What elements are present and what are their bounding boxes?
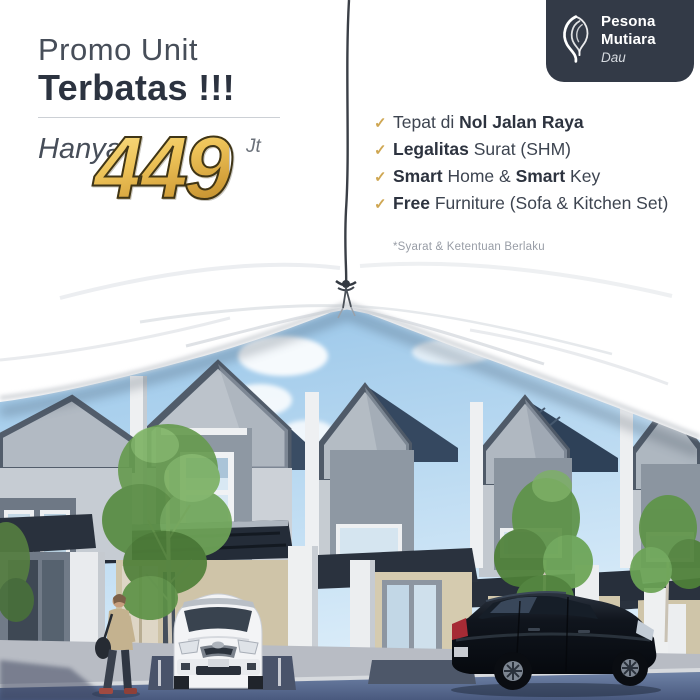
promo-title-line1: Promo Unit <box>38 34 235 67</box>
brand-line2: Mutiara <box>601 31 656 48</box>
check-icon: ✓ <box>374 168 393 186</box>
feature-item: ✓ Legalitas Surat (SHM) <box>374 139 668 166</box>
feature-text: Tepat di Nol Jalan Raya <box>393 112 584 133</box>
promo-flyer-canvas: Promo Unit Terbatas !!! Hanya 449 Jt Pes… <box>0 0 700 700</box>
check-icon: ✓ <box>374 141 393 159</box>
white-suv <box>174 594 263 689</box>
feature-text: Legalitas Surat (SHM) <box>393 139 571 160</box>
brand-line3: Dau <box>601 50 656 65</box>
feature-list: ✓ Tepat di Nol Jalan Raya ✓ Legalitas Su… <box>374 112 668 220</box>
feature-item: ✓ Free Furniture (Sofa & Kitchen Set) <box>374 193 668 220</box>
brand-badge: Pesona Mutiara Dau <box>546 0 694 82</box>
brand-line1: Pesona <box>601 13 656 30</box>
disclaimer-text: *Syarat & Ketentuan Berlaku <box>393 241 545 253</box>
feature-item: ✓ Smart Home & Smart Key <box>374 166 668 193</box>
feature-item: ✓ Tepat di Nol Jalan Raya <box>374 112 668 139</box>
price-unit: Jt <box>246 136 261 158</box>
promo-title-block: Promo Unit Terbatas !!! <box>38 34 235 107</box>
price-value: 449 <box>94 128 229 209</box>
promo-title-line2: Terbatas !!! <box>38 68 235 108</box>
feature-text: Free Furniture (Sofa & Kitchen Set) <box>393 193 668 214</box>
feature-text: Smart Home & Smart Key <box>393 166 600 187</box>
check-icon: ✓ <box>374 195 393 213</box>
pearl-logo-icon <box>558 12 592 66</box>
check-icon: ✓ <box>374 114 393 132</box>
brand-name: Pesona Mutiara Dau <box>601 13 656 65</box>
